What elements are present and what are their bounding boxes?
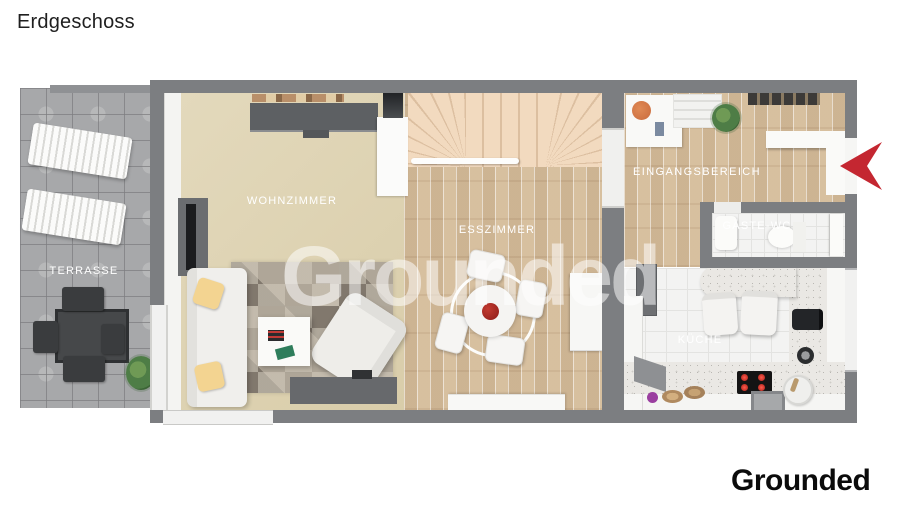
page-title: Erdgeschoss bbox=[17, 11, 135, 34]
room-label-gaeste-wc: GÄSTE-WC bbox=[723, 220, 792, 232]
window-left bbox=[150, 305, 168, 410]
room-label-kueche: KÜCHE bbox=[678, 334, 723, 346]
window-bottom bbox=[163, 410, 273, 425]
room-label-terrasse: TERRASSE bbox=[50, 265, 119, 277]
pillow bbox=[193, 360, 225, 392]
av-device bbox=[352, 370, 372, 379]
wall-art bbox=[252, 94, 344, 102]
room-label-wohnzimmer: WOHNZIMMER bbox=[247, 195, 337, 207]
pillar bbox=[383, 93, 403, 118]
stairs-straight bbox=[466, 93, 546, 167]
tall-cabinet bbox=[377, 117, 408, 196]
wooden-bowl bbox=[662, 390, 683, 403]
burner-icon bbox=[758, 374, 765, 381]
tv-lowboard bbox=[290, 377, 397, 404]
stairs-handrail bbox=[411, 158, 519, 164]
decor-bowl bbox=[632, 101, 651, 120]
window-right bbox=[845, 268, 857, 372]
wall-top bbox=[150, 80, 857, 93]
stairs-winder-right bbox=[546, 93, 604, 167]
burner-icon bbox=[741, 374, 748, 381]
kitchen-window-band bbox=[824, 268, 847, 368]
wooden-bowl bbox=[684, 386, 705, 399]
entrance-arrow-icon bbox=[840, 142, 882, 195]
wall-left bbox=[150, 85, 164, 307]
decor-item bbox=[647, 392, 658, 403]
coffee-table bbox=[258, 317, 310, 366]
book bbox=[268, 330, 284, 341]
bar-stool bbox=[740, 290, 778, 336]
dining-chair bbox=[484, 333, 526, 366]
terrace-chair bbox=[62, 287, 104, 311]
coffee-machine bbox=[792, 309, 823, 330]
terrace-chair bbox=[33, 321, 58, 353]
table-centerpiece bbox=[482, 303, 499, 320]
sideboard-shelf bbox=[303, 130, 329, 138]
terrace-chair bbox=[101, 324, 124, 354]
burner-icon bbox=[741, 384, 748, 391]
plant bbox=[712, 104, 740, 132]
wc-door bbox=[830, 214, 843, 256]
dining-door bbox=[602, 128, 624, 208]
room-label-eingangsbereich: EINGANGSBEREICH bbox=[633, 166, 761, 178]
tv-screen bbox=[186, 204, 196, 270]
room-label-esszimmer: ESSZIMMER bbox=[459, 224, 535, 236]
burner-icon bbox=[758, 384, 765, 391]
entrance-hall-floor-lower bbox=[624, 205, 700, 267]
roof-edge bbox=[50, 85, 152, 93]
dining-sideboard bbox=[570, 273, 602, 351]
decor-item bbox=[655, 122, 664, 136]
toilet-tank bbox=[793, 222, 806, 252]
sideboard bbox=[250, 103, 378, 132]
bar-stool bbox=[702, 292, 739, 336]
doormat bbox=[748, 92, 820, 105]
floorplan-page: Erdgeschoss bbox=[0, 0, 900, 506]
kitchen-canister bbox=[797, 347, 814, 364]
stairs-winder-left bbox=[408, 93, 466, 167]
terrace-chair bbox=[63, 356, 105, 382]
wc-door-opening bbox=[714, 202, 741, 213]
brand-logo: Grounded bbox=[731, 464, 870, 498]
wall-wc-bottom bbox=[700, 257, 857, 268]
